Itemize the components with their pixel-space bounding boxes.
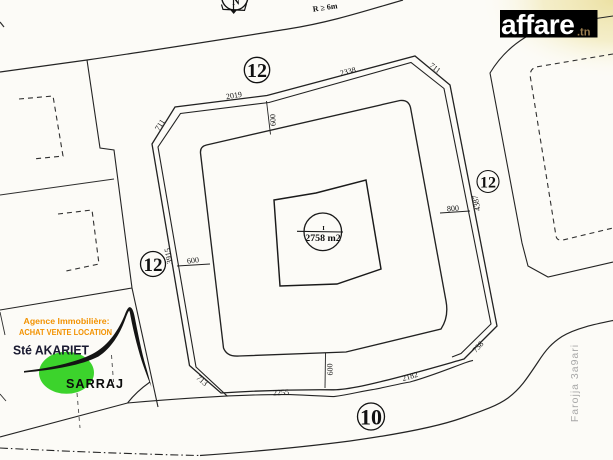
svg-text:ACHAT VENTE LOCATION: ACHAT VENTE LOCATION (19, 328, 112, 337)
svg-text:Farojja 3a9ari: Farojja 3a9ari (569, 344, 581, 422)
svg-text:2255: 2255 (273, 388, 289, 398)
svg-text:600: 600 (325, 363, 334, 375)
svg-text:12: 12 (144, 255, 163, 276)
svg-text:2758 m2: 2758 m2 (305, 234, 341, 244)
svg-text:12: 12 (480, 175, 496, 192)
svg-text:600: 600 (186, 255, 199, 265)
svg-text:Agence Immobilière:: Agence Immobilière: (24, 316, 110, 326)
svg-text:affare: affare (501, 9, 574, 40)
svg-text:12: 12 (247, 60, 267, 82)
svg-text:Sté AKARIET: Sté AKARIET (13, 343, 89, 358)
svg-text:600: 600 (268, 114, 278, 127)
svg-text:10: 10 (360, 405, 382, 430)
svg-text:.tn: .tn (577, 27, 591, 39)
svg-text:SARRAJ: SARRAJ (66, 377, 124, 391)
svg-text:800: 800 (447, 204, 460, 214)
